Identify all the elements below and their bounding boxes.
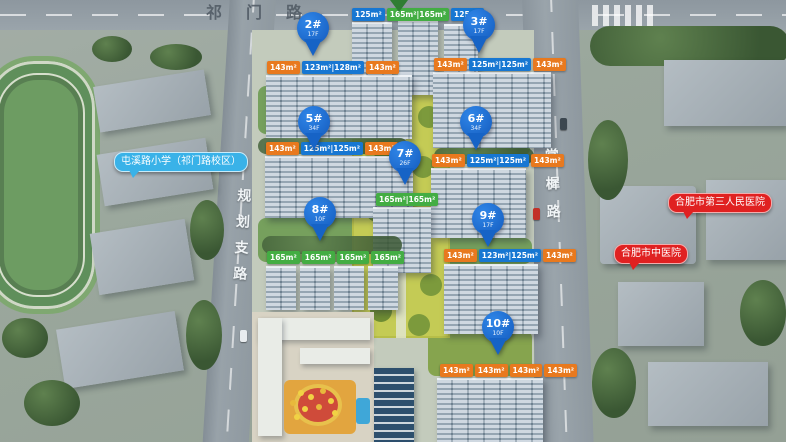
tree	[740, 280, 786, 346]
area-tag: 165m²	[302, 251, 335, 264]
area-tag: 143m²	[475, 364, 508, 377]
tree	[592, 348, 636, 418]
pin-floors: 10F	[314, 216, 325, 223]
area-tags-building-3: 143m² 125m²|125m² 143m²	[434, 58, 566, 71]
kindergarten-roof	[300, 348, 370, 364]
pin-floors: 17F	[307, 31, 318, 38]
pin-building-2[interactable]: 2#17F	[296, 12, 330, 59]
area-tag: 143m²	[510, 364, 543, 377]
area-tags-building-6: 143m² 125m²|125m² 143m²	[432, 154, 564, 167]
area-tag: 143m²	[440, 364, 473, 377]
area-tags-building-9: 143m² 123m²|125m² 143m²	[444, 249, 576, 262]
pin-label: 2#	[305, 19, 322, 31]
pin-label: 6#	[468, 113, 485, 125]
hospital-label-1[interactable]: 合肥市第三人民医院	[668, 193, 772, 213]
pin-building-7[interactable]: 7#26F	[388, 141, 422, 188]
pin-building-6[interactable]: 6#34F	[459, 106, 493, 153]
area-tag: 125m²	[352, 8, 385, 21]
pin-building-10[interactable]: 10#10F	[481, 311, 515, 358]
area-tags-building-7: 165m²|165m²	[376, 193, 438, 206]
tree	[190, 200, 224, 260]
area-tag: 143m²	[434, 58, 467, 71]
crosswalk	[592, 5, 653, 26]
hospital-building	[618, 282, 704, 346]
school-building	[90, 219, 195, 295]
building-2	[266, 75, 412, 139]
pin-floors: 34F	[308, 125, 319, 132]
building-8-unit	[266, 266, 296, 310]
pin-label: 5#	[306, 113, 323, 125]
area-tag: 165m²	[337, 251, 370, 264]
pin-floors: 26F	[399, 160, 410, 167]
aerial-site-plan: 祁门路 规划支路 棠樨路 屯溪路小学（祁门路校区） 合肥市第三人民医院 合肥市中…	[0, 0, 786, 442]
area-tag: 143m²	[533, 58, 566, 71]
school-building	[97, 138, 214, 207]
tree	[588, 120, 628, 200]
pin-label: 8#	[312, 204, 329, 216]
tree	[186, 300, 222, 370]
kindergarten-roof	[258, 318, 282, 436]
building-10	[437, 378, 543, 442]
school-building	[56, 311, 184, 389]
pin-building-3[interactable]: 3#17F	[462, 9, 496, 56]
area-tags-building-8: 165m² 165m² 165m² 165m²	[267, 251, 404, 264]
pin-building-8[interactable]: 8#10F	[303, 197, 337, 244]
pin-floors: 34F	[470, 125, 481, 132]
school-building	[93, 70, 211, 133]
area-tag: 165m²	[267, 251, 300, 264]
pin-label: 10#	[486, 318, 511, 330]
hospital-building	[706, 180, 786, 260]
car	[240, 330, 247, 342]
area-tag: 143m²	[544, 364, 577, 377]
area-tag: 125m²|125m²	[467, 154, 529, 167]
area-tag: 125m²|125m²	[469, 58, 531, 71]
playground-ring	[298, 388, 338, 422]
sports-field	[0, 56, 100, 314]
area-tag: 143m²	[543, 249, 576, 262]
school-label[interactable]: 屯溪路小学（祁门路校区）	[114, 152, 248, 172]
building-8-unit	[334, 266, 364, 310]
pin-floors: 10F	[492, 330, 503, 337]
pin-building-5[interactable]: 5#34F	[297, 106, 331, 153]
tree	[2, 318, 48, 358]
pin-label: 7#	[397, 148, 414, 160]
playground-dots	[298, 390, 304, 396]
hospital-label-2[interactable]: 合肥市中医院	[614, 244, 688, 264]
area-tag: 143m²	[366, 61, 399, 74]
tree	[24, 380, 80, 426]
area-tag: 165m²|165m²	[376, 193, 438, 206]
area-tags-building-2: 143m² 123m²|128m² 143m²	[267, 61, 399, 74]
pin-1-tip	[390, 0, 408, 12]
area-tag: 165m²	[371, 251, 404, 264]
sports-track	[0, 73, 85, 297]
area-tag: 123m²|125m²	[479, 249, 541, 262]
pool	[356, 398, 370, 424]
area-tag: 143m²	[266, 142, 299, 155]
area-tag: 123m²|128m²	[302, 61, 364, 74]
area-tag: 143m²	[432, 154, 465, 167]
pin-floors: 17F	[482, 222, 493, 229]
area-tags-building-10: 143m² 143m² 143m² 143m²	[440, 364, 577, 377]
area-tags-building-5: 143m² 125m²|125m² 143m²	[266, 142, 398, 155]
pin-label: 3#	[471, 16, 488, 28]
solar-panel-building	[374, 368, 414, 442]
building-8-unit	[300, 266, 330, 310]
area-tag: 143m²	[267, 61, 300, 74]
pin-building-9[interactable]: 9#17F	[471, 203, 505, 250]
area-tag: 143m²	[531, 154, 564, 167]
hospital-building	[648, 362, 768, 426]
area-tag: 143m²	[444, 249, 477, 262]
hospital-building	[664, 60, 786, 126]
tree	[92, 36, 132, 62]
pin-label: 9#	[480, 210, 497, 222]
car	[533, 208, 540, 220]
building-8-unit	[368, 266, 398, 310]
car	[560, 118, 567, 130]
tree	[150, 44, 202, 70]
pin-floors: 17F	[473, 28, 484, 35]
kindergarten-playground	[284, 380, 356, 434]
